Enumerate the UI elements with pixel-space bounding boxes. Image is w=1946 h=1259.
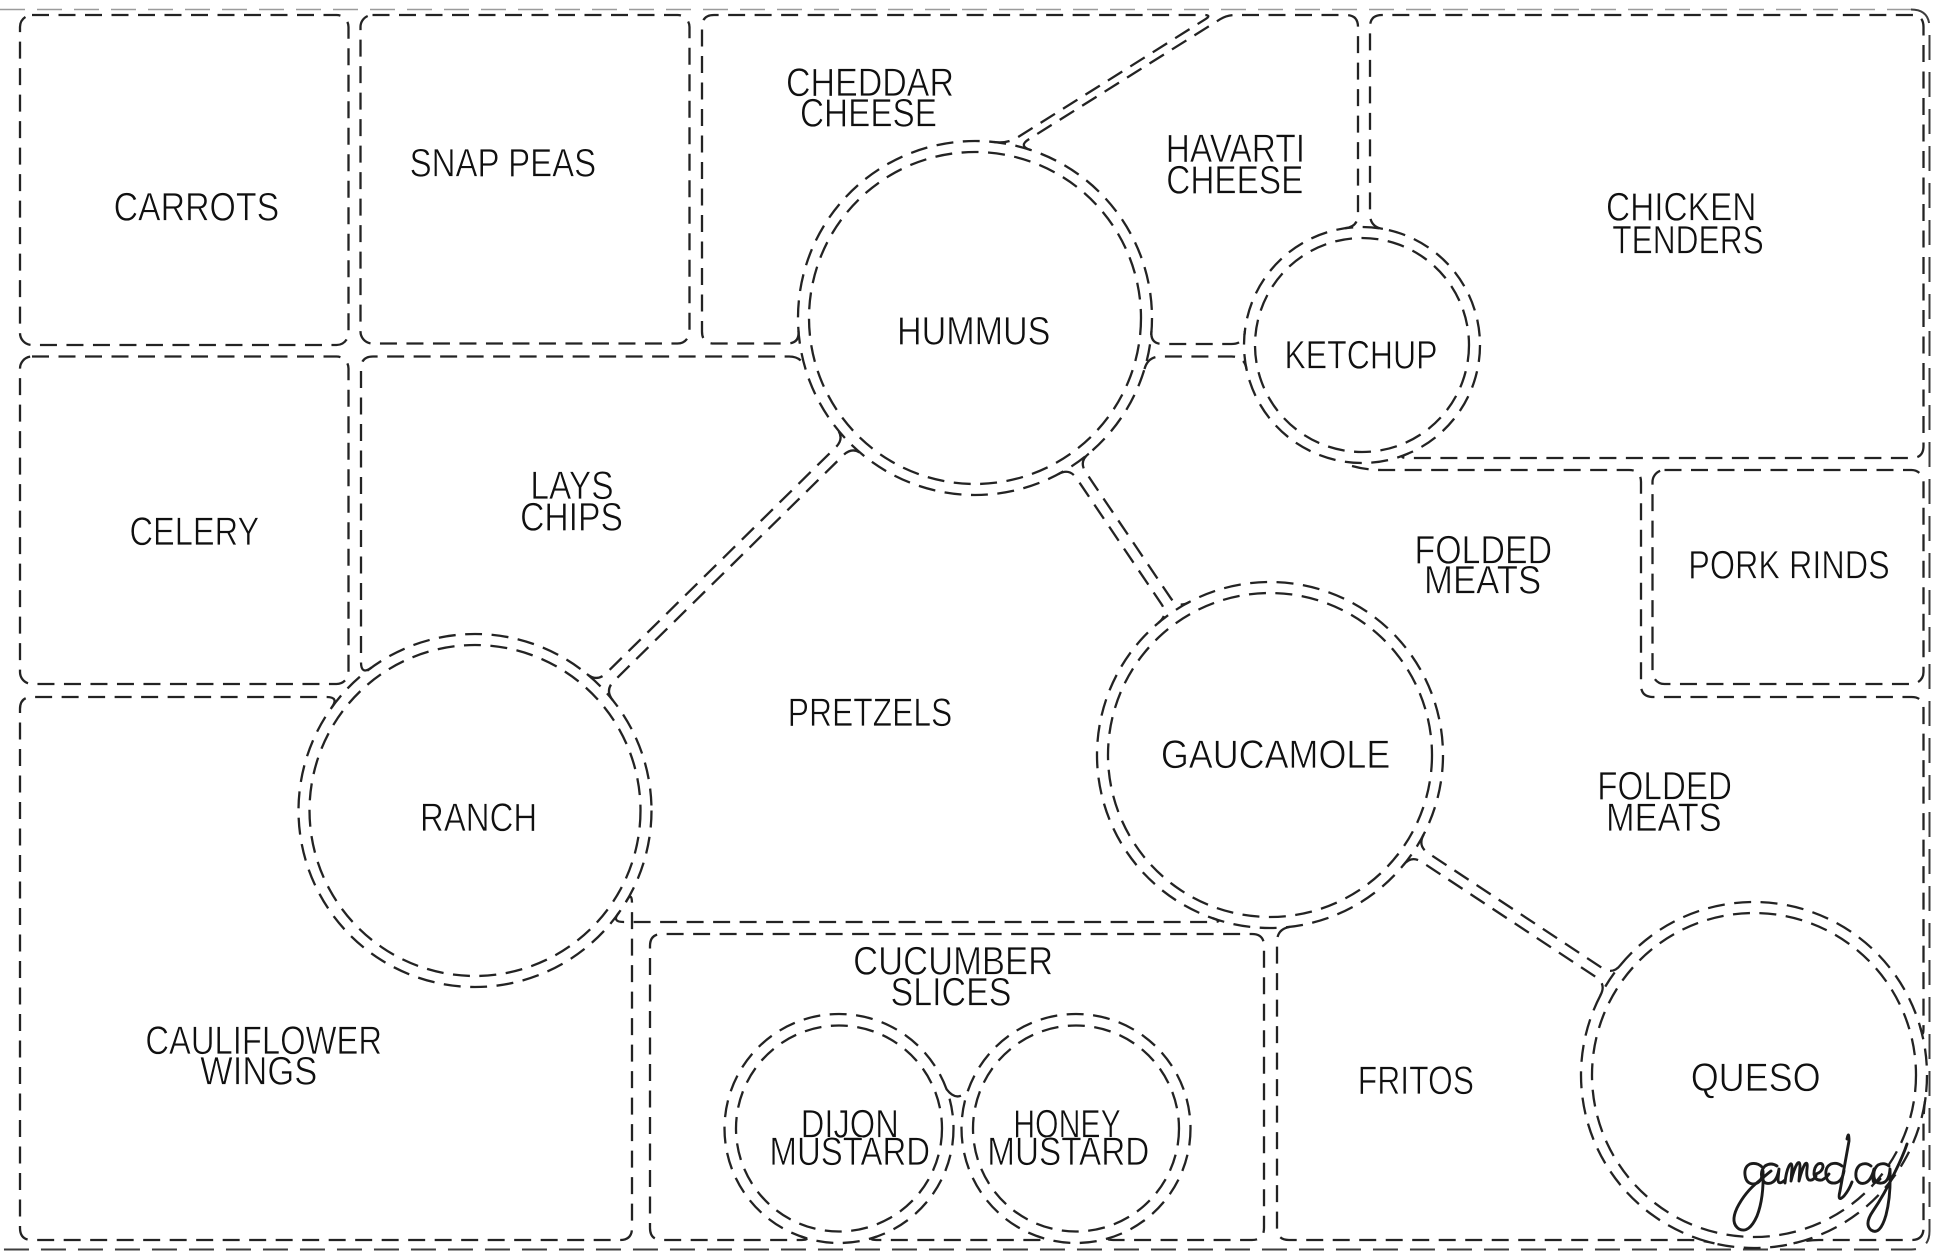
svg-text:KETCHUP: KETCHUP [1284,334,1437,378]
svg-text:MEATS: MEATS [1424,559,1541,603]
svg-text:CHIPS: CHIPS [520,495,623,539]
svg-text:CARROTS: CARROTS [114,186,280,230]
svg-text:PRETZELS: PRETZELS [788,691,953,735]
svg-text:TENDERS: TENDERS [1612,219,1764,263]
svg-text:SNAP PEAS: SNAP PEAS [410,141,597,185]
svg-text:CELERY: CELERY [130,510,260,554]
svg-text:PORK RINDS: PORK RINDS [1688,544,1890,588]
svg-text:GAUCAMOLE: GAUCAMOLE [1161,733,1391,777]
svg-text:WINGS: WINGS [200,1049,317,1093]
svg-text:HUMMUS: HUMMUS [897,309,1051,353]
svg-text:MEATS: MEATS [1606,796,1722,840]
svg-text:RANCH: RANCH [420,796,537,840]
svg-text:QUESO: QUESO [1691,1056,1821,1100]
svg-text:SLICES: SLICES [891,970,1012,1014]
svg-text:MUSTARD: MUSTARD [987,1130,1149,1174]
svg-text:MUSTARD: MUSTARD [770,1130,931,1174]
svg-text:CHEESE: CHEESE [1166,159,1303,203]
svg-text:CHEESE: CHEESE [800,91,937,135]
svg-text:FRITOS: FRITOS [1358,1059,1474,1103]
